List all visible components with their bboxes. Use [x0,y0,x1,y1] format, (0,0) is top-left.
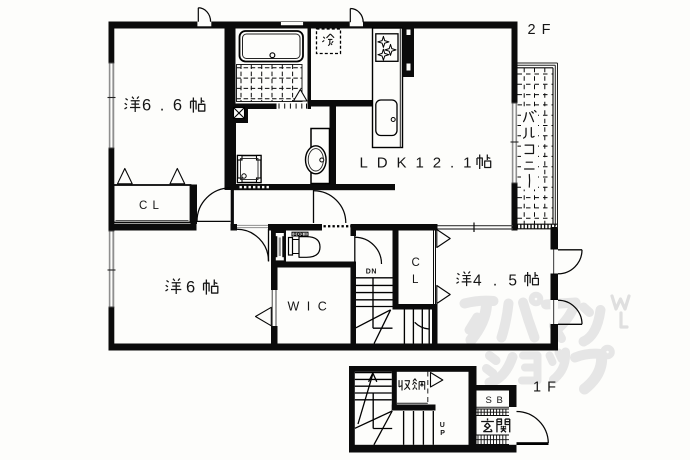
svg-text:6: 6 [186,279,195,297]
svg-text:6.6: 6.6 [142,97,182,115]
svg-text:1 F: 1 F [533,380,557,396]
svg-text:P: P [440,430,445,437]
svg-text:S B: S B [486,395,504,406]
svg-text:2 F: 2 F [528,22,552,38]
svg-text:C: C [412,257,420,269]
svg-text:L: L [412,274,419,286]
svg-text:L: L [153,200,160,212]
svg-text:W I C: W I C [288,300,329,314]
svg-text:4.5: 4.5 [473,273,517,290]
svg-text:C: C [139,200,147,212]
svg-text:U: U [440,422,445,429]
svg-text:DN: DN [366,269,377,276]
